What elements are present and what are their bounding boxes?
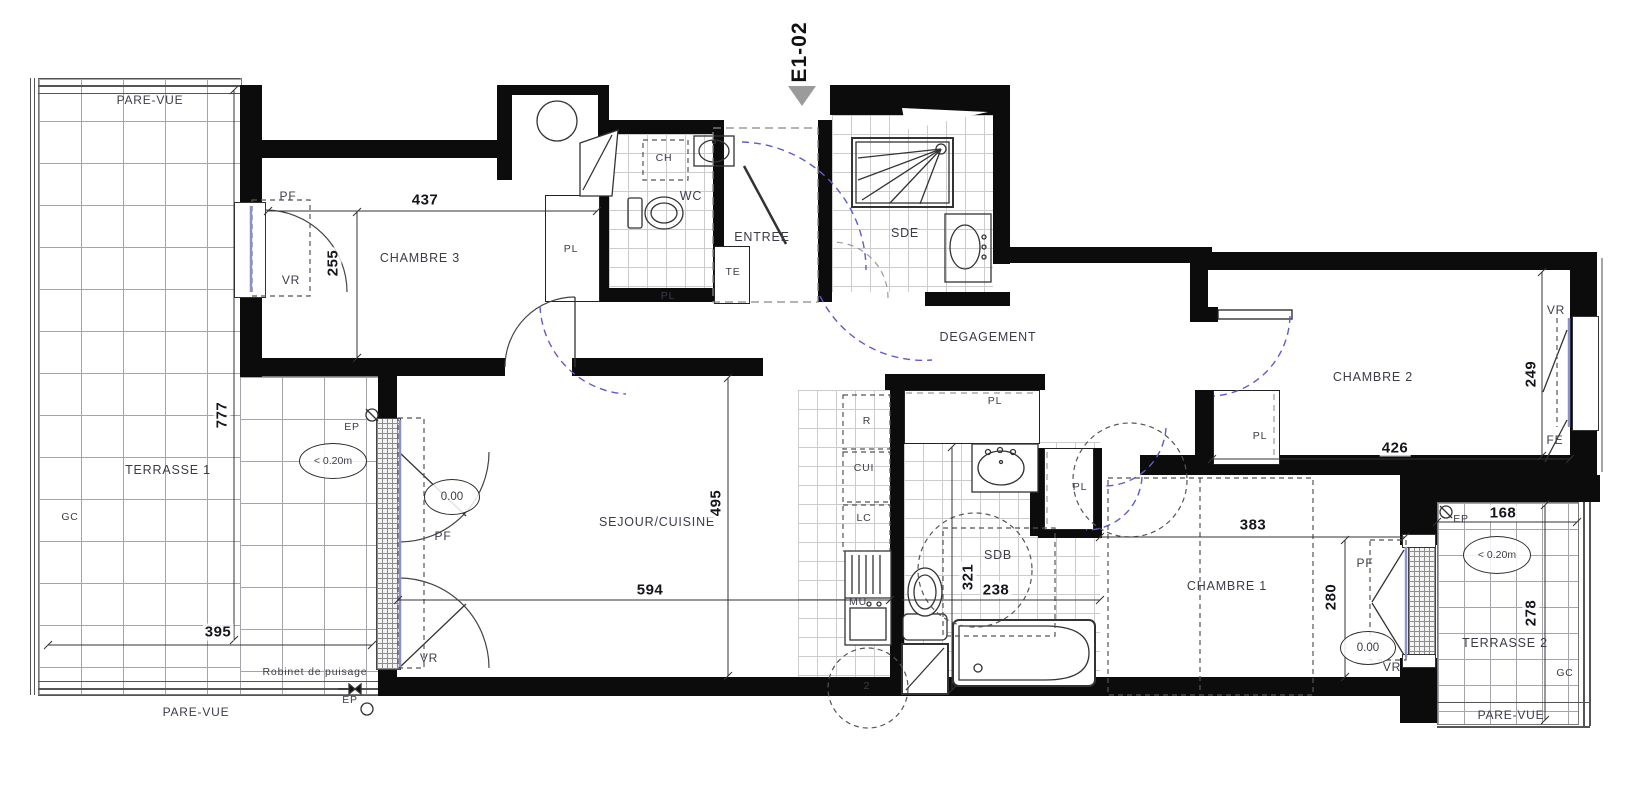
tag-lc-kitchen: LC: [856, 512, 871, 524]
tag-gc-terrasse2: GC: [1556, 667, 1573, 679]
unit-id-label: E1-02: [788, 21, 812, 82]
tag-gc-terrasse1: GC: [61, 511, 78, 523]
tag-fe-chambre2: FE: [1547, 433, 1564, 447]
dim-sejour-height: 495: [708, 488, 725, 519]
dim-chambre2-width: 426: [1380, 440, 1411, 457]
dim-sdb-width: 238: [981, 582, 1012, 599]
tag-pl-chambre2-closet: PL: [1253, 430, 1267, 442]
tag-te-closet: TE: [725, 266, 740, 278]
room-label-wc: WC: [680, 189, 702, 203]
room-label-terrasse1: TERRASSE 1: [125, 463, 211, 477]
room-label-degagement: DEGAGEMENT: [940, 330, 1037, 344]
dim-terrasse2-height: 278: [1523, 598, 1540, 629]
dim-sdb-height: 321: [960, 562, 977, 593]
tag-pl-wc-left: PL: [564, 243, 578, 255]
tag-ch-wc: CH: [656, 152, 673, 164]
tag-ep-terrasse1-bottom: EP: [342, 694, 358, 706]
tag-cui-kitchen: CUI: [854, 462, 874, 474]
room-label-chambre2: CHAMBRE 2: [1333, 370, 1413, 384]
unit-marker-triangle-icon: [788, 86, 816, 106]
floor-plan: E1-02 CHAMBRE 3 WC ENTREE SDE DEGAGEMENT…: [0, 0, 1645, 800]
room-label-sde: SDE: [891, 226, 919, 240]
tag-robinet: Robinet de puisage: [263, 666, 368, 678]
dim-chambre1-height: 280: [1323, 582, 1340, 613]
tag-ep-terrasse1-top: EP: [344, 421, 360, 433]
room-label-chambre3: CHAMBRE 3: [380, 251, 460, 265]
dim-chambre3-width: 437: [410, 192, 441, 209]
room-label-sejour: SEJOUR/CUISINE: [599, 515, 715, 529]
tag-pf-sejour: PF: [435, 529, 452, 543]
tag-note2-kitchen: 2: [864, 680, 871, 692]
tag-r-kitchen: R: [863, 415, 871, 427]
tag-pl-sdb-closet: PL: [1073, 481, 1087, 493]
dim-chambre2-height: 249: [1523, 359, 1540, 390]
tag-pl-degagement-closet: PL: [988, 395, 1002, 407]
dim-chambre3-height: 255: [325, 248, 342, 279]
dim-chambre1-width: 383: [1238, 517, 1269, 534]
tag-vr-chambre3: VR: [282, 273, 300, 287]
tag-vr-chambre2: VR: [1547, 303, 1565, 317]
fixtures-layer: [0, 0, 1645, 800]
tag-pf-chambre3: PF: [280, 189, 297, 203]
threshold-marker-terrasse2: < 0.20m: [1463, 536, 1531, 574]
tag-pl-wc-south: PL: [661, 290, 675, 302]
dim-terrasse1-height: 777: [214, 400, 231, 431]
tag-pare-vue-t1-top: PARE-VUE: [117, 93, 184, 107]
room-label-terrasse2: TERRASSE 2: [1462, 636, 1548, 650]
dim-sejour-width: 594: [635, 582, 666, 599]
tag-vr-sejour: VR: [420, 651, 438, 665]
level-marker-chambre1: 0.00: [1340, 631, 1396, 665]
room-label-sdb: SDB: [984, 548, 1012, 562]
tag-ep-terrasse2: EP: [1453, 513, 1469, 525]
tag-vr-chambre1: VR: [1383, 660, 1401, 674]
dim-terrasse2-width: 168: [1488, 505, 1519, 522]
tag-mu-kitchen: MU: [849, 596, 867, 608]
tag-pare-vue-t2-bottom: PARE-VUE: [1478, 708, 1545, 722]
dim-terrasse1-width: 395: [203, 624, 234, 641]
room-label-chambre1: CHAMBRE 1: [1187, 579, 1267, 593]
tag-pf-chambre1: PF: [1357, 556, 1374, 570]
level-marker-sejour: 0.00: [424, 479, 480, 515]
room-label-entree: ENTREE: [734, 230, 790, 244]
threshold-marker-terrasse1: < 0.20m: [299, 443, 367, 479]
tag-pare-vue-t1-bottom: PARE-VUE: [163, 705, 230, 719]
